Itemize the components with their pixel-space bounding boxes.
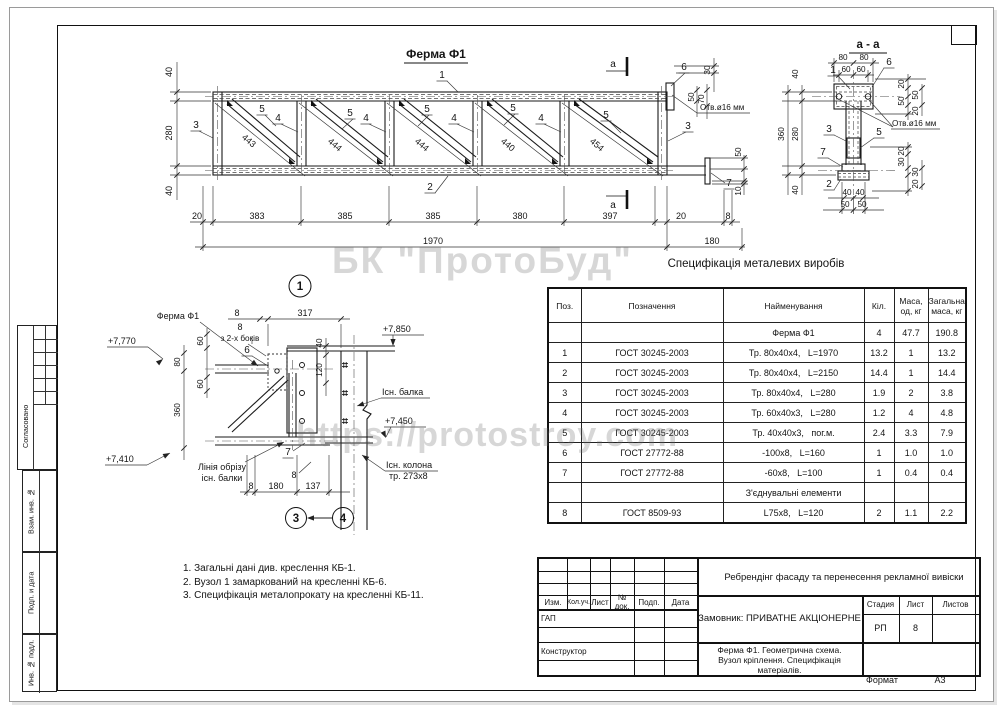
dim-label: 40 [842, 188, 852, 197]
format-note: Формат А3 [866, 675, 986, 685]
dim-label: 1970 [423, 236, 443, 246]
spec-cell: -100х8, L=160 [723, 443, 864, 463]
spec-header: Загальна маса, кг [928, 288, 966, 323]
dim-label: 317 [297, 308, 312, 318]
dim-label: 80 [859, 53, 869, 62]
table-row: 6ГОСТ 27772-88-100х8, L=16011.01.0 [548, 443, 966, 463]
section-cut-letter: а [610, 200, 616, 211]
part-label: 5 [510, 103, 516, 114]
spec-cell: ГОСТ 30245-2003 [581, 403, 723, 423]
annotation: Ферма Ф1 [157, 311, 199, 321]
part-label: 2 [826, 179, 832, 190]
spec-cell: 1.0 [928, 443, 966, 463]
dim-label: 40 [791, 69, 800, 79]
doc-title-line: матеріалів. [697, 665, 862, 675]
margin-podp-block: Подп. и дата [22, 552, 57, 634]
doc-title-line: Ферма Ф1. Геометрична схема. [697, 645, 862, 655]
dim-label: 137 [305, 481, 320, 491]
spec-cell [894, 483, 928, 503]
table-row: З'єднувальні елементи [548, 483, 966, 503]
dim-label: 385 [425, 211, 440, 221]
dim-label: 40 [164, 67, 174, 77]
spec-cell: 1 [548, 343, 581, 363]
part-label: 3 [826, 124, 832, 135]
spec-cell: 1.2 [864, 403, 894, 423]
elevation-label: +7,770 [108, 336, 136, 346]
spec-cell: 1 [864, 463, 894, 483]
node-detail-drawing: 1 [105, 275, 438, 535]
margin-agreed-block: Согласовано [17, 325, 57, 470]
role-gap: ГАП [541, 609, 567, 627]
margin-agreed-label: Согласовано [18, 384, 33, 469]
spec-cell [928, 483, 966, 503]
part-label: 6 [886, 57, 892, 68]
table-row: 7ГОСТ 27772-88-60х8, L=10010.40.4 [548, 463, 966, 483]
spec-header: Найменування [723, 288, 864, 323]
part-label: 4 [275, 113, 281, 124]
dim-label: 50 [687, 92, 696, 102]
truss-title: Ферма Ф1 [406, 47, 466, 61]
dim-label: 397 [602, 211, 617, 221]
stage-header: Стадия [862, 595, 899, 614]
spec-cell: 4 [894, 403, 928, 423]
doc-title-line: Вузол кріплення. Специфікація [697, 655, 862, 665]
dim-label: 440 [499, 136, 517, 153]
project-title: Ребрендінг фасаду та перенесення рекламн… [697, 559, 991, 595]
table-row: 2ГОСТ 30245-2003Тр. 80х40х4, L=215014.41… [548, 363, 966, 383]
table-row: 5ГОСТ 30245-2003Тр. 40х40х3, пог.м.2.43.… [548, 423, 966, 443]
margin-inv-label: Инв. № подл. [23, 635, 39, 691]
spec-cell: ГОСТ 30245-2003 [581, 383, 723, 403]
spec-cell: ГОСТ 27772-88 [581, 443, 723, 463]
dim-label: 20 [192, 211, 202, 221]
annotation: Лінія обрізу [198, 462, 246, 472]
dim-label: 30 [897, 157, 906, 167]
table-row: 8ГОСТ 8509-93L75х8, L=12021.12.2 [548, 503, 966, 524]
spec-cell: Тр. 40х40х3, пог.м. [723, 423, 864, 443]
dim-label: 180 [704, 236, 719, 246]
doc-title: Ферма Ф1. Геометрична схема. Вузол кріпл… [697, 644, 862, 674]
specification: Специфікація металевих виробів Поз. Позн… [547, 258, 965, 524]
dim-label: 20 [911, 106, 920, 116]
table-row: 1ГОСТ 30245-2003Тр. 80х40х4, L=197013.21… [548, 343, 966, 363]
dim-label: 30 [911, 167, 920, 177]
dim-label: 443 [240, 132, 258, 149]
hole-note: Отв.ø16 мм [700, 103, 745, 112]
spec-cell [581, 483, 723, 503]
spec-cell: Тр. 80х40х4, L=1970 [723, 343, 864, 363]
dim-label: 30 [703, 65, 712, 75]
section-cut-letter: а [610, 59, 616, 70]
dim-label: 383 [249, 211, 264, 221]
spec-cell: 1 [864, 443, 894, 463]
dim-label: 50 [734, 147, 743, 157]
spec-cell: Ферма Ф1 [723, 323, 864, 343]
dim-label: 380 [512, 211, 527, 221]
part-label: 7 [285, 447, 291, 458]
dim-label: 444 [326, 136, 344, 153]
detail-bubble: 4 [340, 513, 347, 525]
margin-podp-label: Подп. и дата [23, 553, 39, 633]
dim-label: 60 [841, 65, 851, 74]
spec-cell: 4 [864, 323, 894, 343]
dim-label: 385 [337, 211, 352, 221]
dim-label: 40 [791, 185, 800, 195]
stamp-header-doc: № док. [610, 595, 634, 609]
general-notes: 1. Загальні дані див. креслення КБ-1. 2.… [183, 562, 424, 603]
spec-cell [581, 323, 723, 343]
dim-label: 20 [911, 179, 920, 189]
part-label: 5 [347, 108, 353, 119]
dim-label: 60 [856, 65, 866, 74]
spec-cell: ГОСТ 30245-2003 [581, 363, 723, 383]
spec-cell: 2 [864, 503, 894, 524]
truss-drawing: Ферма Ф1 [164, 47, 750, 251]
margin-vzam-block: Взам. инв. № [22, 470, 57, 552]
spec-cell: 2 [894, 383, 928, 403]
table-row: 4ГОСТ 30245-2003Тр. 60х40х3, L=2801.244.… [548, 403, 966, 423]
spec-cell: ГОСТ 8509-93 [581, 503, 723, 524]
dim-label: 50 [857, 200, 867, 209]
spec-cell: -60х8, L=100 [723, 463, 864, 483]
spec-cell: 3.3 [894, 423, 928, 443]
dim-label: 40 [855, 188, 865, 197]
dim-label: 180 [268, 481, 283, 491]
part-label: 1 [830, 65, 836, 76]
weld-note: з 2-х боків [221, 334, 260, 343]
annotation: тр. 273х8 [389, 471, 428, 481]
dim-label: 50 [897, 96, 906, 106]
spec-cell: 14.4 [928, 363, 966, 383]
margin-vzam-label: Взам. инв. № [23, 471, 39, 551]
spec-cell: 8 [548, 503, 581, 524]
spec-cell: 0.4 [928, 463, 966, 483]
elevation-label: +7,450 [385, 416, 413, 426]
annotation: Існ. балка [382, 387, 423, 397]
spec-cell: 1 [894, 363, 928, 383]
dim-label: 20 [897, 146, 906, 156]
spec-cell: Тр. 60х40х3, L=280 [723, 403, 864, 423]
part-label: 6 [681, 62, 687, 73]
dim-label: 40 [315, 338, 324, 348]
format-value: А3 [935, 675, 946, 685]
part-label: 4 [538, 113, 544, 124]
spec-cell [548, 483, 581, 503]
dim-label: 20 [897, 79, 906, 89]
weld-size: 8 [237, 322, 242, 332]
part-label: 5 [424, 104, 430, 115]
dim-label: 80 [173, 357, 182, 367]
note-line: 3. Специфікація металопрокату на креслен… [183, 589, 424, 603]
role-constructor: Конструктор [541, 642, 591, 660]
spec-cell: З'єднувальні елементи [723, 483, 864, 503]
spec-cell: 7.9 [928, 423, 966, 443]
spec-cell: 4.8 [928, 403, 966, 423]
spec-cell: 0.4 [894, 463, 928, 483]
detail-bubble: 1 [297, 281, 304, 293]
spec-cell: 6 [548, 443, 581, 463]
spec-cell: 47.7 [894, 323, 928, 343]
dim-label: 20 [676, 211, 686, 221]
spec-cell [548, 323, 581, 343]
table-row: Ферма Ф1447.7190.8 [548, 323, 966, 343]
sheet-number: 8 [899, 614, 932, 642]
sheets-header: Листов [932, 595, 979, 614]
blueprint-sheet: БК "ПротоБуд" https://protostroy.com Фер… [0, 0, 1000, 707]
dim-label: 120 [315, 363, 324, 377]
dim-label: 444 [413, 136, 431, 153]
part-label: 5 [876, 127, 882, 138]
part-label: 5 [603, 110, 609, 121]
spec-header: Позначення [581, 288, 723, 323]
stamp-header-list: Лист [590, 595, 610, 609]
spec-cell: ГОСТ 30245-2003 [581, 423, 723, 443]
dim-label: 280 [791, 127, 800, 141]
stamp-header-izm: Изм. [539, 595, 567, 609]
part-label: 4 [363, 113, 369, 124]
spec-cell: 13.2 [864, 343, 894, 363]
spec-cell: Тр. 80х40х4, L=2150 [723, 363, 864, 383]
spec-cell: ГОСТ 27772-88 [581, 463, 723, 483]
annotation: Існ. колона [386, 460, 432, 470]
elevation-label: +7,410 [106, 454, 134, 464]
annotation: існ. балки [202, 473, 243, 483]
dim-label: 360 [777, 127, 786, 141]
spec-cell: 1.0 [894, 443, 928, 463]
weld-size: 8 [291, 470, 296, 480]
spec-cell: 1.9 [864, 383, 894, 403]
spec-cell: 1 [894, 343, 928, 363]
spec-header: Маса, од, кг [894, 288, 928, 323]
dim-label: 360 [173, 403, 182, 417]
spec-cell: 2.4 [864, 423, 894, 443]
spec-cell [864, 483, 894, 503]
dim-label: 8 [234, 308, 239, 318]
note-line: 2. Вузол 1 замаркований на кресленні КБ-… [183, 576, 424, 590]
spec-cell: 3 [548, 383, 581, 403]
part-label: 7 [726, 178, 732, 189]
part-label: 4 [451, 113, 457, 124]
part-label: 1 [439, 70, 445, 81]
spec-cell: 190.8 [928, 323, 966, 343]
spec-cell: 5 [548, 423, 581, 443]
client: Замовник: ПРИВАТНЕ АКЦІОНЕРНЕ [697, 595, 862, 642]
spec-cell: 2.2 [928, 503, 966, 524]
dim-label: 8 [725, 211, 730, 221]
note-line: 1. Загальні дані див. креслення КБ-1. [183, 562, 424, 576]
stamp-header-podp: Подп. [634, 595, 664, 609]
stamp-header-data: Дата [664, 595, 697, 609]
spec-cell: ГОСТ 30245-2003 [581, 343, 723, 363]
part-label: 3 [193, 120, 199, 131]
hole-note: Отв.ø16 мм [892, 119, 937, 128]
dim-label: 8 [248, 481, 253, 491]
spec-cell: L75х8, L=120 [723, 503, 864, 524]
dim-label: 280 [164, 125, 174, 140]
spec-cell: 4 [548, 403, 581, 423]
part-label: 2 [427, 182, 433, 193]
spec-cell: 14.4 [864, 363, 894, 383]
dim-label: 80 [838, 53, 848, 62]
dim-label: 60 [196, 336, 205, 346]
dim-label: 40 [164, 186, 174, 196]
section-title: а - а [856, 39, 880, 51]
part-label: 5 [259, 104, 265, 115]
spec-cell: 2 [548, 363, 581, 383]
dim-label: 50 [840, 200, 850, 209]
spec-header: Поз. [548, 288, 581, 323]
part-label: 7 [820, 147, 826, 158]
stage-value: РП [862, 614, 899, 642]
table-row: 3ГОСТ 30245-2003Тр. 80х40х4, L=2801.923.… [548, 383, 966, 403]
section-a-a-drawing: а - а [777, 39, 940, 214]
spec-cell: 13.2 [928, 343, 966, 363]
spec-title: Специфікація металевих виробів [547, 258, 965, 272]
sheet-header: Лист [899, 595, 932, 614]
spec-cell: Тр. 80х40х4, L=280 [723, 383, 864, 403]
part-label: 6 [244, 345, 250, 356]
detail-bubble: 3 [293, 513, 299, 525]
spec-table: Поз. Позначення Найменування Кіл. Маса, … [547, 287, 967, 524]
dim-label: 10 [734, 186, 743, 196]
elevation-label: +7,850 [383, 324, 411, 334]
title-block: Изм. Кол.уч. Лист № док. Подп. Дата ГАП … [537, 557, 981, 677]
spec-cell: 1.1 [894, 503, 928, 524]
part-label: 3 [685, 121, 691, 132]
spec-cell: 3.8 [928, 383, 966, 403]
dim-label: 60 [196, 379, 205, 389]
margin-inv-block: Инв. № подл. [22, 634, 57, 692]
dim-label: 50 [911, 90, 920, 100]
spec-cell: 7 [548, 463, 581, 483]
spec-header: Кіл. [864, 288, 894, 323]
stamp-header-kol: Кол.уч. [567, 595, 590, 609]
format-label: Формат [866, 675, 898, 685]
dim-label: 454 [588, 136, 606, 153]
